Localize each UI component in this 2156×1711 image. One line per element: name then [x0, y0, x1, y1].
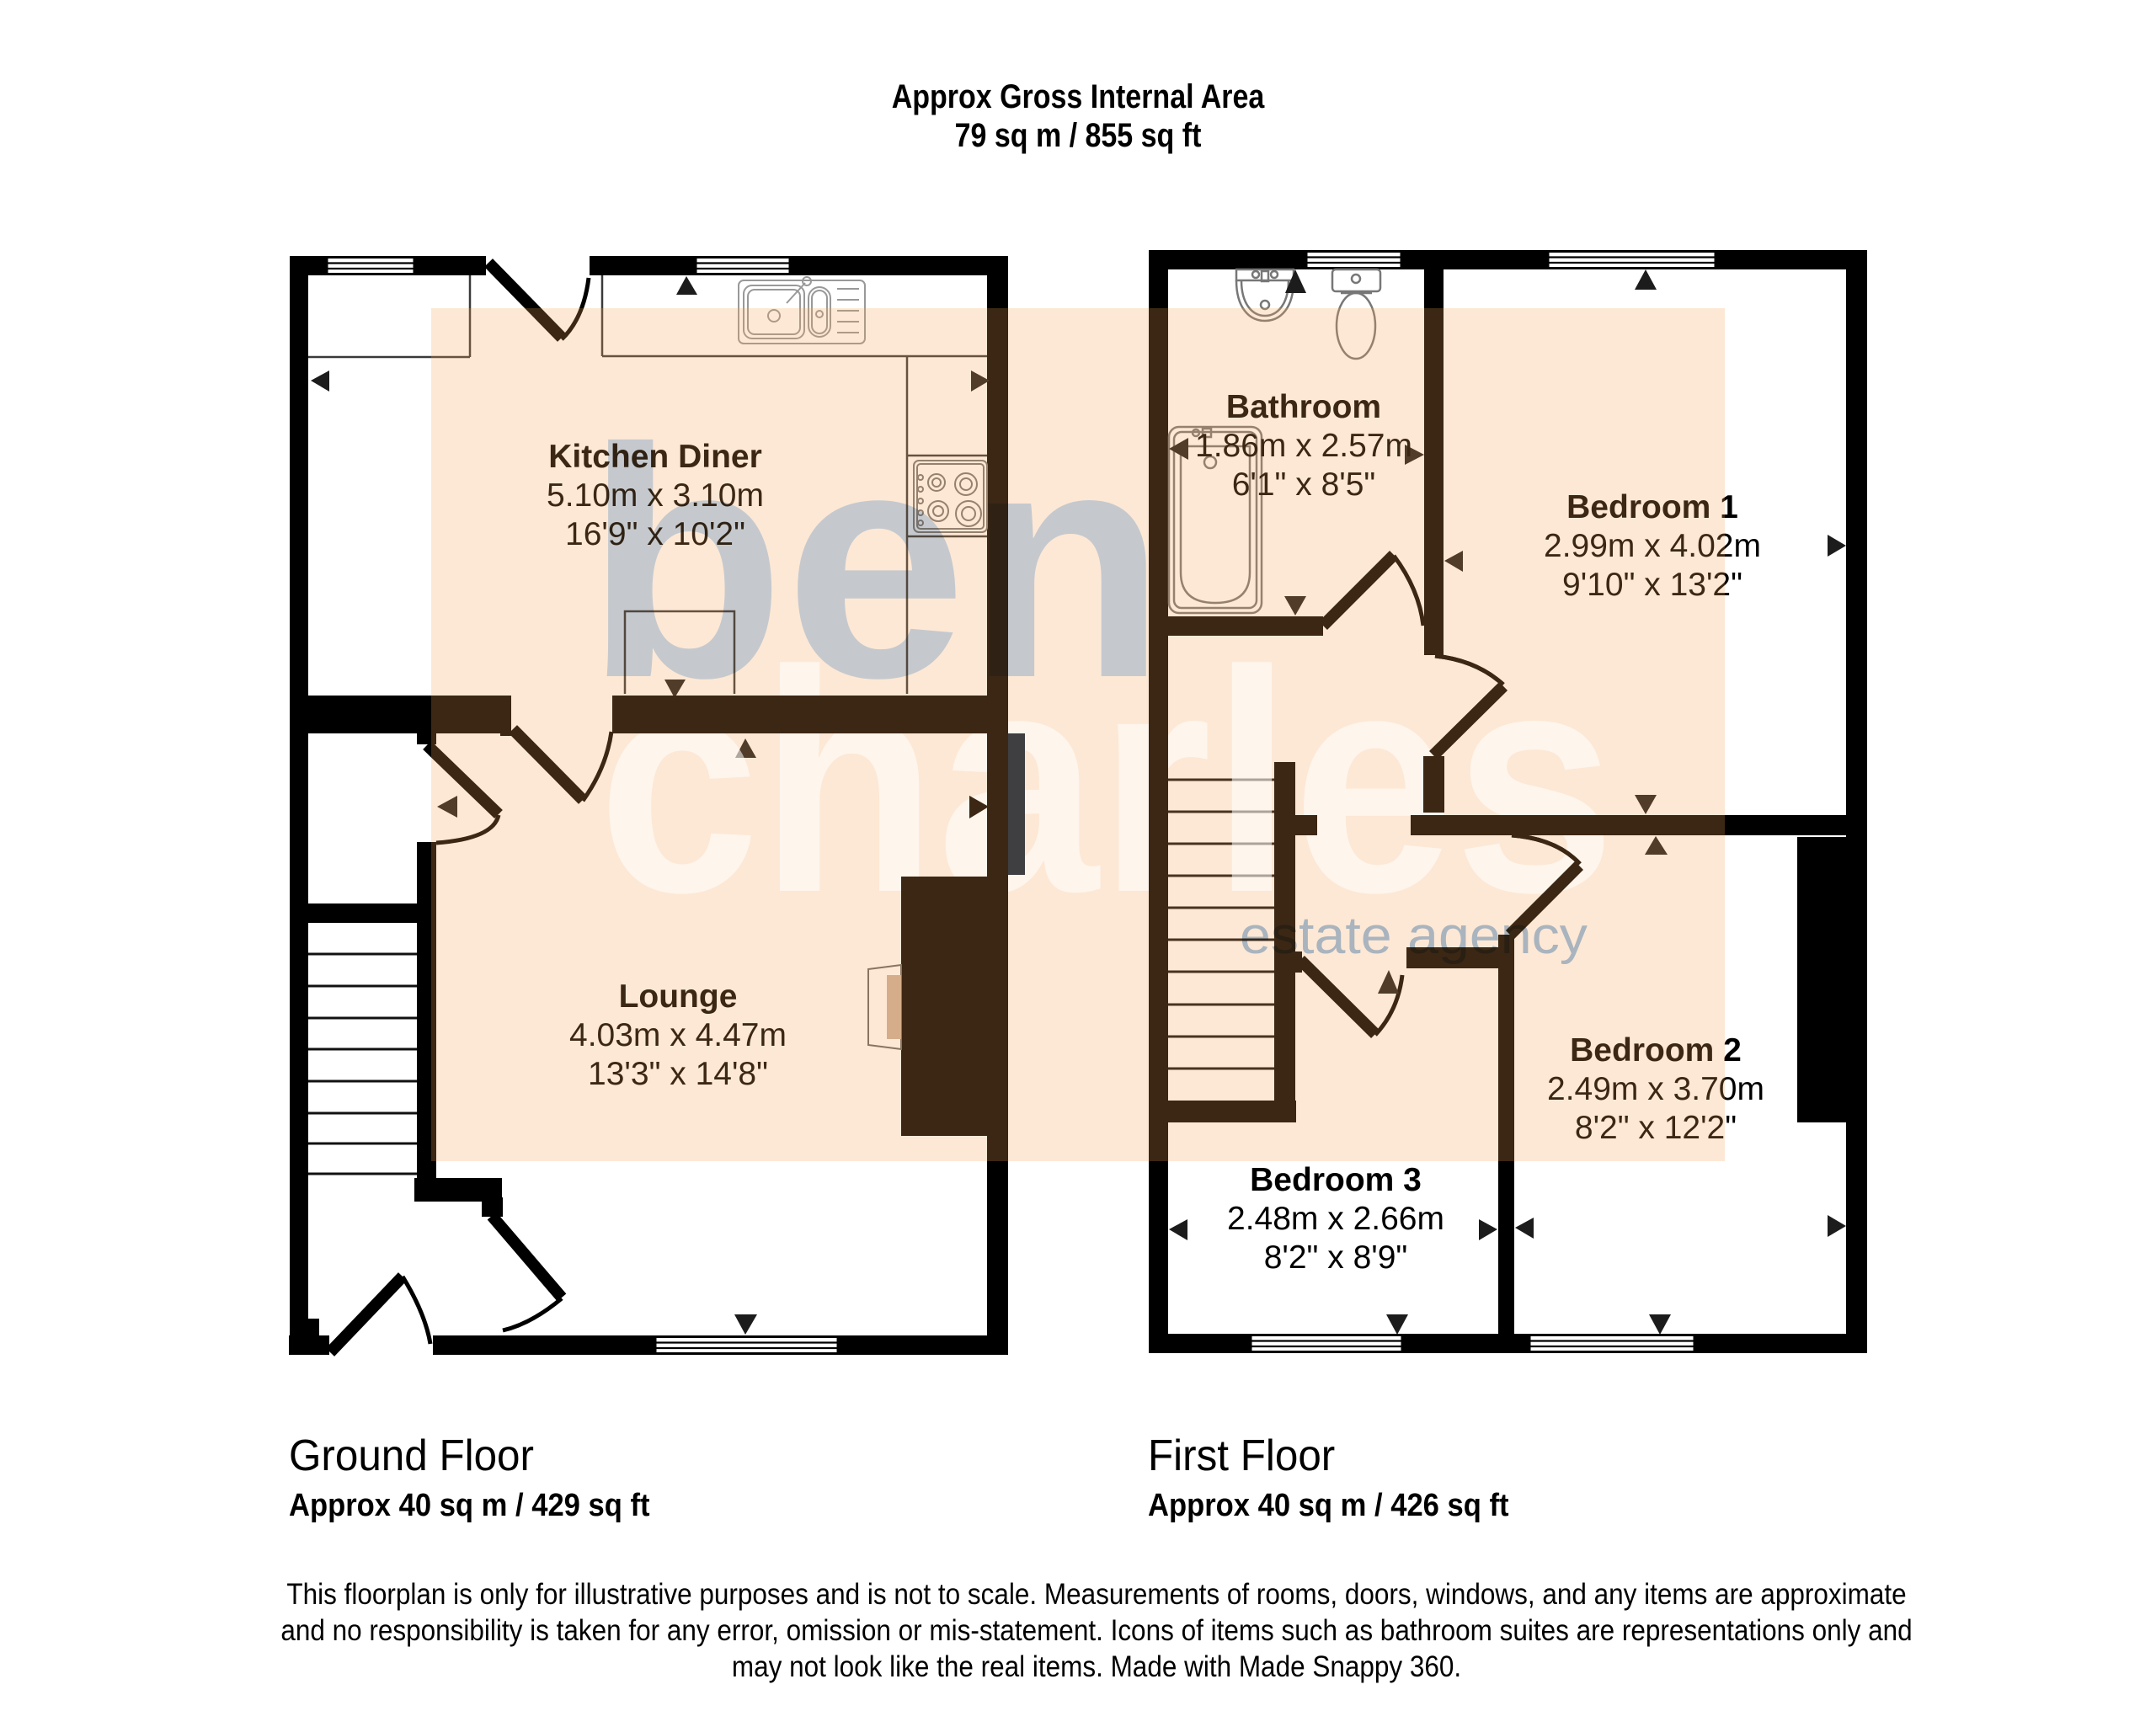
svg-text:and no responsibility is taken: and no responsibility is taken for any e…	[280, 1615, 1912, 1648]
svg-text:This floorplan is only for ill: This floorplan is only for illustrative …	[286, 1579, 1906, 1612]
svg-text:may not look like the real ite: may not look like the real items. Made w…	[732, 1651, 1461, 1684]
svg-text:8'2" x 8'9": 8'2" x 8'9"	[1264, 1239, 1408, 1276]
svg-text:ben: ben	[585, 381, 1166, 746]
svg-text:Bedroom 3: Bedroom 3	[1250, 1162, 1422, 1198]
svg-text:Approx 40 sq m / 426 sq ft: Approx 40 sq m / 426 sq ft	[1148, 1486, 1509, 1522]
svg-text:estate agency: estate agency	[1240, 906, 1588, 965]
svg-text:79 sq m / 855 sq ft: 79 sq m / 855 sq ft	[955, 115, 1202, 153]
svg-text:Ground Floor: Ground Floor	[289, 1431, 534, 1479]
svg-text:First Floor: First Floor	[1148, 1431, 1335, 1479]
svg-text:2.48m x 2.66m: 2.48m x 2.66m	[1227, 1201, 1444, 1237]
svg-text:Approx Gross Internal Area: Approx Gross Internal Area	[892, 77, 1265, 115]
svg-text:Approx 40 sq m / 429 sq ft: Approx 40 sq m / 429 sq ft	[289, 1486, 650, 1522]
